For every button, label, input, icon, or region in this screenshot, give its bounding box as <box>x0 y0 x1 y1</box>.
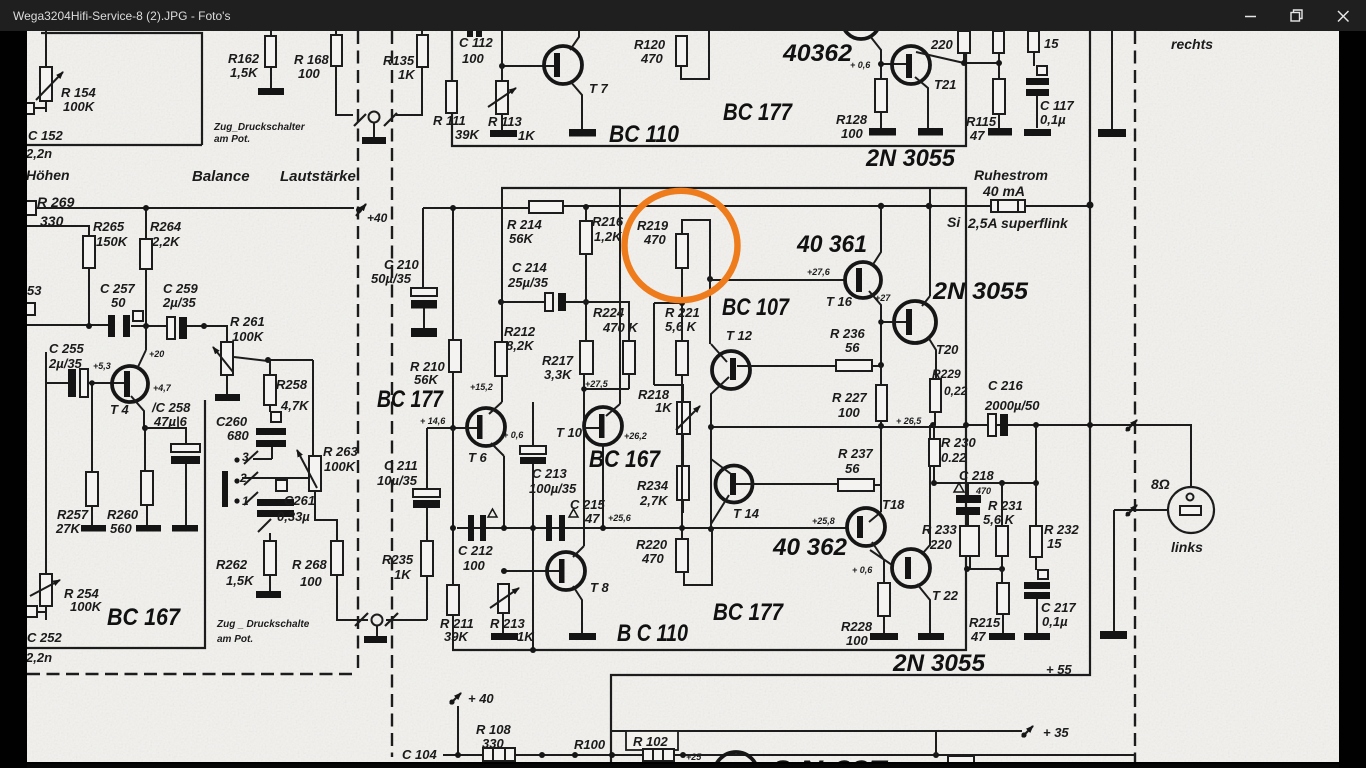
svg-text:+20: +20 <box>149 349 164 359</box>
svg-text:0,22: 0,22 <box>944 384 968 398</box>
svg-text:R 269: R 269 <box>37 194 75 210</box>
svg-text:56: 56 <box>845 461 860 476</box>
svg-text:+ 26,5: + 26,5 <box>896 416 922 426</box>
svg-text:100: 100 <box>841 126 863 141</box>
svg-text:+ 0,6: + 0,6 <box>503 430 524 440</box>
svg-text:1,5K: 1,5K <box>230 65 259 80</box>
svg-text:T 4: T 4 <box>110 402 130 417</box>
svg-text:B C 110: B C 110 <box>617 620 689 647</box>
svg-text:+25,6: +25,6 <box>608 513 632 523</box>
svg-text:39K: 39K <box>444 629 469 644</box>
svg-text:Si: Si <box>947 214 961 230</box>
svg-text:100: 100 <box>846 633 868 648</box>
svg-text:R115: R115 <box>966 114 997 129</box>
svg-text:T 22: T 22 <box>932 588 959 603</box>
svg-text:+40: +40 <box>367 211 388 225</box>
svg-text:560: 560 <box>110 521 132 536</box>
svg-text:R128: R128 <box>836 112 868 127</box>
svg-text:am Pot.: am Pot. <box>217 634 253 645</box>
svg-text:40362: 40362 <box>782 40 853 67</box>
svg-text:47: 47 <box>970 629 986 644</box>
svg-text:39K: 39K <box>455 127 480 142</box>
svg-text:56K: 56K <box>414 372 439 387</box>
svg-text:56: 56 <box>845 340 860 355</box>
svg-text:R162: R162 <box>228 51 260 66</box>
svg-text:2,2n: 2,2n <box>25 650 52 665</box>
svg-text:2,2K: 2,2K <box>151 234 181 249</box>
svg-text:R 236: R 236 <box>830 326 865 341</box>
svg-text:1,2K: 1,2K <box>594 229 623 244</box>
svg-text:40 361: 40 361 <box>796 231 867 258</box>
svg-text:R 168: R 168 <box>294 52 329 67</box>
svg-text:C 216: C 216 <box>988 378 1023 393</box>
svg-text:C 104: C 104 <box>402 747 437 762</box>
svg-text:R219: R219 <box>637 218 669 233</box>
svg-text:27K: 27K <box>55 521 81 536</box>
svg-text:C 210: C 210 <box>384 257 419 272</box>
svg-text:+ 0,6: + 0,6 <box>850 60 871 70</box>
svg-text:R100: R100 <box>574 737 606 752</box>
svg-text:680: 680 <box>227 428 249 443</box>
svg-text:R224: R224 <box>593 305 625 320</box>
svg-text:R212: R212 <box>504 324 536 339</box>
svg-text:T 10: T 10 <box>556 425 583 440</box>
svg-text:2N 3055: 2N 3055 <box>892 650 986 677</box>
svg-text:T 12: T 12 <box>726 328 753 343</box>
svg-text:470 K: 470 K <box>602 320 639 335</box>
svg-text:+26,2: +26,2 <box>624 431 647 441</box>
svg-text:C 212: C 212 <box>458 543 493 558</box>
svg-text:100µ/35: 100µ/35 <box>529 481 577 496</box>
svg-text:R 227: R 227 <box>832 390 867 405</box>
svg-text:R220: R220 <box>636 537 668 552</box>
svg-text:+ 0,6: + 0,6 <box>852 565 873 575</box>
svg-text:R 221: R 221 <box>665 305 700 320</box>
svg-text:3,3K: 3,3K <box>544 367 573 382</box>
svg-text:R264: R264 <box>150 219 182 234</box>
svg-text:50µ/35: 50µ/35 <box>371 271 412 286</box>
svg-text:470: 470 <box>975 486 991 496</box>
svg-text:8Ω: 8Ω <box>1151 476 1170 492</box>
svg-text:+4,7: +4,7 <box>153 383 172 393</box>
svg-text:100: 100 <box>298 66 320 81</box>
svg-text:T20: T20 <box>936 342 959 357</box>
svg-text:R229: R229 <box>932 367 961 381</box>
svg-text:1K: 1K <box>517 629 535 644</box>
svg-text:220: 220 <box>929 537 952 552</box>
svg-text:+5,3: +5,3 <box>93 361 111 371</box>
svg-text:2N 3055: 2N 3055 <box>932 278 1029 305</box>
svg-text:0,1µ: 0,1µ <box>1042 614 1068 629</box>
svg-text:100K: 100K <box>70 599 103 614</box>
svg-text:2N 3055: 2N 3055 <box>865 145 956 172</box>
svg-text:R 268: R 268 <box>292 557 327 572</box>
svg-text:Höhen: Höhen <box>26 167 70 183</box>
svg-text:am Pot.: am Pot. <box>214 134 250 145</box>
svg-text:100: 100 <box>838 405 860 420</box>
svg-text:+ 14,6: + 14,6 <box>420 416 446 426</box>
svg-text:Balance: Balance <box>192 168 250 185</box>
svg-text:C261: C261 <box>284 493 315 508</box>
svg-text:R235: R235 <box>382 552 414 567</box>
svg-text:+ 55: + 55 <box>1046 662 1072 677</box>
svg-text:2000µ/50: 2000µ/50 <box>984 398 1040 413</box>
svg-text:R228: R228 <box>841 619 873 634</box>
svg-text:4,7K: 4,7K <box>280 398 310 413</box>
svg-text:0,33µ: 0,33µ <box>277 509 310 524</box>
svg-text:R 232: R 232 <box>1044 522 1079 537</box>
svg-text:56K: 56K <box>509 231 534 246</box>
svg-text:R 231: R 231 <box>988 498 1023 513</box>
svg-text:100K: 100K <box>63 99 96 114</box>
svg-text:C 112: C 112 <box>459 35 493 50</box>
svg-text:47µ|6: 47µ|6 <box>153 414 188 429</box>
svg-text:150K: 150K <box>96 234 129 249</box>
svg-text:100: 100 <box>462 51 484 66</box>
svg-text:R120: R120 <box>634 37 666 52</box>
svg-text:3: 3 <box>242 450 249 464</box>
svg-text:1: 1 <box>242 494 249 508</box>
svg-text:5,6 K: 5,6 K <box>665 319 698 334</box>
svg-text:R 233: R 233 <box>922 522 957 537</box>
svg-text:R257: R257 <box>57 507 89 522</box>
svg-text:R 261: R 261 <box>230 314 265 329</box>
svg-text:220: 220 <box>930 37 953 52</box>
svg-text:50: 50 <box>111 295 126 310</box>
svg-text:BC 107: BC 107 <box>722 294 790 321</box>
svg-text:2µ/35: 2µ/35 <box>48 356 83 371</box>
svg-text:Wega3204Hifi-Service-8 (2).JPG: Wega3204Hifi-Service-8 (2).JPG - Foto's <box>13 9 230 23</box>
svg-text:+27,6: +27,6 <box>807 267 831 277</box>
svg-text:+15,2: +15,2 <box>470 382 493 392</box>
svg-text:T 14: T 14 <box>733 506 760 521</box>
svg-text:R 214: R 214 <box>507 217 542 232</box>
svg-text:C 259: C 259 <box>163 281 198 296</box>
svg-text:/C 258: /C 258 <box>151 400 191 415</box>
svg-text:C 215: C 215 <box>570 497 605 512</box>
svg-text:47: 47 <box>584 511 600 526</box>
svg-text:C 211: C 211 <box>384 458 418 473</box>
svg-text:C 117: C 117 <box>1040 98 1074 113</box>
svg-text:R260: R260 <box>107 507 139 522</box>
svg-text:470: 470 <box>641 551 664 566</box>
svg-text:BC 177: BC 177 <box>377 386 444 413</box>
svg-text:C 152: C 152 <box>28 128 63 143</box>
svg-text:Lautstärke: Lautstärke <box>280 168 356 185</box>
svg-text:53: 53 <box>27 283 42 298</box>
svg-text:25µ/35: 25µ/35 <box>507 275 549 290</box>
svg-text:R258: R258 <box>276 377 308 392</box>
svg-text:+25: +25 <box>686 752 702 762</box>
svg-text:1K: 1K <box>655 400 673 415</box>
svg-text:R 102: R 102 <box>633 734 668 749</box>
svg-text:15: 15 <box>1044 36 1059 51</box>
svg-text:R 230: R 230 <box>941 435 976 450</box>
svg-text:1,5K: 1,5K <box>226 573 255 588</box>
svg-text:100K: 100K <box>232 329 265 344</box>
svg-text:BC 177: BC 177 <box>723 99 793 126</box>
svg-text:470: 470 <box>640 51 663 66</box>
svg-text:+ 35: + 35 <box>1043 725 1069 740</box>
svg-text:2,2n: 2,2n <box>25 146 52 161</box>
svg-text:470: 470 <box>643 232 666 247</box>
svg-text:Zug _ Druckschalte: Zug _ Druckschalte <box>216 619 310 630</box>
svg-text:0.22: 0.22 <box>941 450 967 465</box>
svg-text:T 8: T 8 <box>590 580 610 595</box>
svg-text:C 218: C 218 <box>959 468 994 483</box>
svg-text:C260: C260 <box>216 414 248 429</box>
svg-text:C 217: C 217 <box>1041 600 1076 615</box>
svg-text:+25,8: +25,8 <box>812 516 835 526</box>
svg-text:+27: +27 <box>875 293 891 303</box>
svg-text:R217: R217 <box>542 353 574 368</box>
svg-text:C 214: C 214 <box>512 260 547 275</box>
svg-text:C 257: C 257 <box>100 281 135 296</box>
svg-text:rechts: rechts <box>1171 36 1213 52</box>
svg-text:R 154: R 154 <box>61 85 96 100</box>
svg-text:0,1µ: 0,1µ <box>1040 112 1066 127</box>
svg-text:BC 177: BC 177 <box>713 599 784 626</box>
svg-text:8,2K: 8,2K <box>506 338 535 353</box>
svg-text:BC 167: BC 167 <box>589 446 661 473</box>
svg-text:+27,5: +27,5 <box>585 379 609 389</box>
svg-text:R 108: R 108 <box>476 722 511 737</box>
svg-text:15: 15 <box>1047 536 1062 551</box>
svg-text:C 213: C 213 <box>532 466 567 481</box>
svg-text:T21: T21 <box>934 77 956 92</box>
svg-text:T 7: T 7 <box>589 81 609 96</box>
svg-text:R 113: R 113 <box>488 114 522 129</box>
svg-text:100: 100 <box>300 574 322 589</box>
svg-text:R265: R265 <box>93 219 125 234</box>
svg-text:BC 110: BC 110 <box>609 121 680 148</box>
svg-text:Zug_Druckschalter: Zug_Druckschalter <box>213 122 306 133</box>
svg-text:R262: R262 <box>216 557 248 572</box>
svg-text:5,6 K: 5,6 K <box>983 512 1016 527</box>
svg-text:40 362: 40 362 <box>772 534 848 561</box>
svg-text:1K: 1K <box>394 567 412 582</box>
svg-text:C 255: C 255 <box>49 341 84 356</box>
svg-text:T 6: T 6 <box>468 450 488 465</box>
svg-text:47: 47 <box>969 128 985 143</box>
svg-text:1K: 1K <box>398 67 416 82</box>
svg-text:2µ/35: 2µ/35 <box>162 295 197 310</box>
svg-text:2,5A superflink: 2,5A superflink <box>967 215 1069 231</box>
svg-text:T18: T18 <box>882 497 905 512</box>
svg-text:R234: R234 <box>637 478 669 493</box>
svg-text:100: 100 <box>463 558 485 573</box>
svg-text:BC 167: BC 167 <box>107 604 181 631</box>
svg-text:1K: 1K <box>518 128 536 143</box>
svg-text:R 263: R 263 <box>323 444 358 459</box>
svg-text:R215: R215 <box>969 615 1001 630</box>
svg-text:T 16: T 16 <box>826 294 853 309</box>
svg-text:R 237: R 237 <box>838 446 873 461</box>
svg-text:Ruhestrom: Ruhestrom <box>974 167 1048 183</box>
svg-text:100K: 100K <box>324 459 357 474</box>
svg-text:R 111: R 111 <box>433 113 466 128</box>
svg-text:C 252: C 252 <box>27 630 62 645</box>
svg-text:R135: R135 <box>383 53 415 68</box>
svg-text:2,7K: 2,7K <box>639 493 669 508</box>
svg-text:10µ/35: 10µ/35 <box>377 473 418 488</box>
svg-text:40 mA: 40 mA <box>982 183 1025 199</box>
svg-text:+ 40: + 40 <box>468 691 494 706</box>
svg-text:links: links <box>1171 539 1203 555</box>
